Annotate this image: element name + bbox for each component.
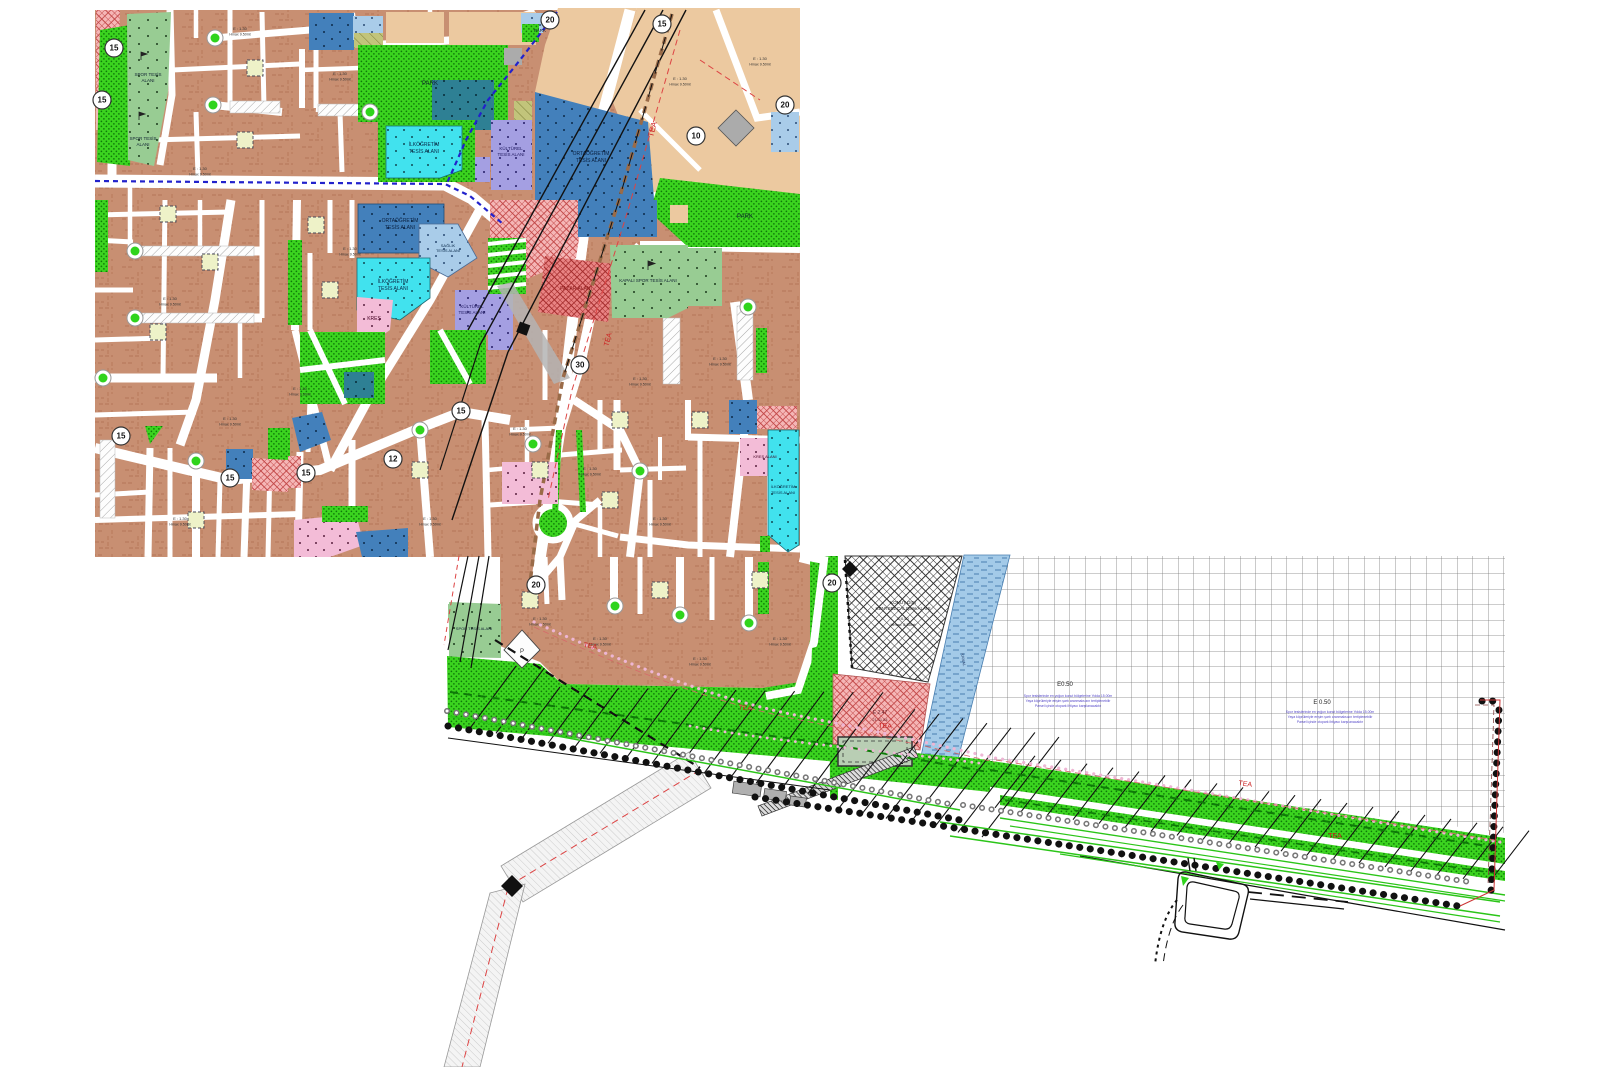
svg-text:PAZAR ALANI: PAZAR ALANI	[560, 286, 592, 292]
svg-text:Hmax 9.50mt: Hmax 9.50mt	[749, 63, 770, 67]
svg-text:Spor tesislerinde en yoğun: Spor tesislerinde en yoğun konut bölgele…	[1286, 710, 1375, 714]
svg-text:KREŞ: KREŞ	[367, 316, 381, 322]
svg-text:E : 1.30: E : 1.30	[293, 386, 308, 391]
svg-text:P: P	[520, 649, 524, 655]
svg-text:15: 15	[302, 469, 311, 478]
svg-text:E : 1.30: E : 1.30	[343, 246, 358, 251]
svg-text:E : 1.30: E : 1.30	[193, 166, 208, 171]
svg-text:E : 1.30: E : 1.30	[583, 466, 598, 471]
svg-text:Parsel içinde otopark ihtiy: Parsel içinde otopark ihtiyacı karşılana…	[1035, 704, 1102, 708]
svg-text:TESİS ALANI: TESİS ALANI	[436, 248, 460, 253]
svg-text:ORTAÖĞRETİM: ORTAÖĞRETİM	[573, 150, 610, 157]
svg-text:Yaya köprüleriyle erişim şartı: Yaya köprüleriyle erişim şartı aranmaksı…	[1288, 715, 1374, 719]
svg-text:E : 1.30: E : 1.30	[513, 426, 528, 431]
svg-text:PARK: PARK	[534, 28, 546, 33]
svg-text:E0.50: E0.50	[1057, 682, 1073, 688]
svg-text:15: 15	[658, 20, 667, 29]
svg-text:15: 15	[226, 474, 235, 483]
svg-text:E : 1.30: E : 1.30	[533, 616, 548, 621]
svg-text:E : 1.30: E : 1.30	[693, 656, 708, 661]
svg-text:Hmax 9.50mt: Hmax 9.50mt	[169, 523, 190, 527]
svg-text:KÜLTÜREL: KÜLTÜREL	[499, 145, 523, 151]
svg-text:Hmax 9.50mt: Hmax 9.50mt	[339, 253, 360, 257]
svg-text:TEA: TEA	[1328, 833, 1342, 840]
svg-text:E : 1.30: E : 1.30	[173, 516, 188, 521]
svg-text:TESİS ALANI: TESİS ALANI	[409, 148, 439, 155]
svg-text:Hmax 9.50mt: Hmax 9.50mt	[669, 83, 690, 87]
svg-text:KONUT DIŞI: KONUT DIŞI	[890, 600, 916, 605]
svg-text:Hmax 9.50mt: Hmax 9.50mt	[289, 393, 310, 397]
svg-text:Hmax: 6.50mt: Hmax: 6.50mt	[891, 622, 917, 627]
svg-text:20: 20	[532, 581, 541, 590]
svg-text:30: 30	[576, 361, 585, 370]
svg-text:KENTSEL ÇALIŞMA ALANI: KENTSEL ÇALIŞMA ALANI	[875, 606, 930, 611]
svg-text:SPOR TESİS ALANI: SPOR TESİS ALANI	[456, 626, 492, 631]
svg-text:Hmax 9.50mt: Hmax 9.50mt	[649, 523, 670, 527]
svg-text:KAPALI SPOR TESİS ALANI: KAPALI SPOR TESİS ALANI	[619, 277, 677, 283]
svg-text:KREŞ ALANI: KREŞ ALANI	[753, 454, 776, 459]
svg-text:Hmax 9.50mt: Hmax 9.50mt	[579, 473, 600, 477]
svg-text:Hmax 9.50mt: Hmax 9.50mt	[219, 423, 240, 427]
svg-text:E : 1.30: E : 1.30	[653, 516, 668, 521]
svg-text:İLKÖĞRETİM: İLKÖĞRETİM	[378, 278, 409, 285]
svg-text:ALANI: ALANI	[136, 142, 149, 147]
svg-text:PARK: PARK	[422, 81, 438, 87]
svg-text:SPOR TESİS: SPOR TESİS	[135, 71, 162, 77]
svg-text:E : 1.30: E : 1.30	[163, 296, 178, 301]
svg-text:Parsel içinde otopark ihtiy: Parsel içinde otopark ihtiyacı karşılana…	[1297, 720, 1364, 724]
svg-text:İLKÖĞRETİM: İLKÖĞRETİM	[409, 141, 440, 148]
svg-text:E : 1.30: E : 1.30	[333, 71, 348, 76]
svg-text:10: 10	[692, 132, 701, 141]
svg-text:TESİS ALANI: TESİS ALANI	[378, 285, 408, 292]
svg-text:E 0.50: E 0.50	[1313, 700, 1331, 706]
svg-text:TESİS ALANI: TESİS ALANI	[497, 151, 524, 157]
svg-text:E 2.47: E 2.47	[873, 710, 888, 716]
svg-text:E : 1.30: E : 1.30	[233, 26, 248, 31]
svg-text:E:0.50: E:0.50	[897, 616, 909, 621]
svg-text:Hmax 9.50mt: Hmax 9.50mt	[159, 303, 180, 307]
svg-text:21.11.84: 21.11.84	[872, 717, 888, 722]
svg-text:E : 1.30: E : 1.30	[593, 636, 608, 641]
svg-text:TEA: TEA	[878, 723, 892, 731]
svg-text:KÜLTÜREL: KÜLTÜREL	[460, 303, 484, 309]
svg-text:TESİS ALANI: TESİS ALANI	[458, 309, 485, 315]
svg-text:İLKÖĞRETİM: İLKÖĞRETİM	[771, 484, 796, 489]
svg-text:Yaya köprüleriyle erişim şartı: Yaya köprüleriyle erişim şartı aranmaksı…	[1026, 699, 1112, 703]
svg-text:Hmax 9.50mt: Hmax 9.50mt	[329, 78, 350, 82]
svg-text:ALANI: ALANI	[141, 78, 154, 83]
svg-text:Hmax 9.50mt: Hmax 9.50mt	[509, 433, 530, 437]
svg-text:20: 20	[546, 16, 555, 25]
svg-text:PARK: PARK	[737, 214, 753, 220]
svg-text:ORTAÖĞRETİM: ORTAÖĞRETİM	[382, 217, 419, 224]
svg-text:20: 20	[828, 579, 837, 588]
svg-text:15: 15	[457, 407, 466, 416]
svg-text:Hmax 9.50mt: Hmax 9.50mt	[629, 383, 650, 387]
svg-text:Hmax 9.50mt: Hmax 9.50mt	[769, 643, 790, 647]
svg-text:E : 1.30: E : 1.30	[713, 356, 728, 361]
svg-text:15: 15	[117, 432, 126, 441]
svg-text:E : 1.30: E : 1.30	[633, 376, 648, 381]
svg-text:Hmax 9.50mt: Hmax 9.50mt	[419, 523, 440, 527]
svg-text:E : 1.30: E : 1.30	[423, 516, 438, 521]
svg-text:SPOR TESİS: SPOR TESİS	[130, 135, 157, 141]
svg-text:12: 12	[389, 455, 398, 464]
svg-text:15: 15	[110, 44, 119, 53]
svg-text:Hmax 9.50mt: Hmax 9.50mt	[189, 173, 210, 177]
svg-text:15: 15	[98, 96, 107, 105]
svg-text:Spor tesislerinde en yoğun: Spor tesislerinde en yoğun konut bölgele…	[1024, 694, 1113, 698]
svg-text:E : 1.30: E : 1.30	[673, 76, 688, 81]
svg-text:E : 1.30: E : 1.30	[753, 56, 768, 61]
svg-text:20: 20	[781, 101, 790, 110]
svg-text:TESİS ALANI: TESİS ALANI	[385, 224, 415, 231]
svg-text:E : 1.30: E : 1.30	[223, 416, 238, 421]
svg-text:TESİS ALANI: TESİS ALANI	[771, 490, 795, 495]
svg-text:E : 1.30: E : 1.30	[773, 636, 788, 641]
svg-text:Hmax 9.50mt: Hmax 9.50mt	[229, 33, 250, 37]
svg-text:TESİS ALANI: TESİS ALANI	[576, 157, 606, 164]
svg-text:Hmax 9.50mt: Hmax 9.50mt	[689, 663, 710, 667]
svg-text:Hmax 9.50mt: Hmax 9.50mt	[709, 363, 730, 367]
